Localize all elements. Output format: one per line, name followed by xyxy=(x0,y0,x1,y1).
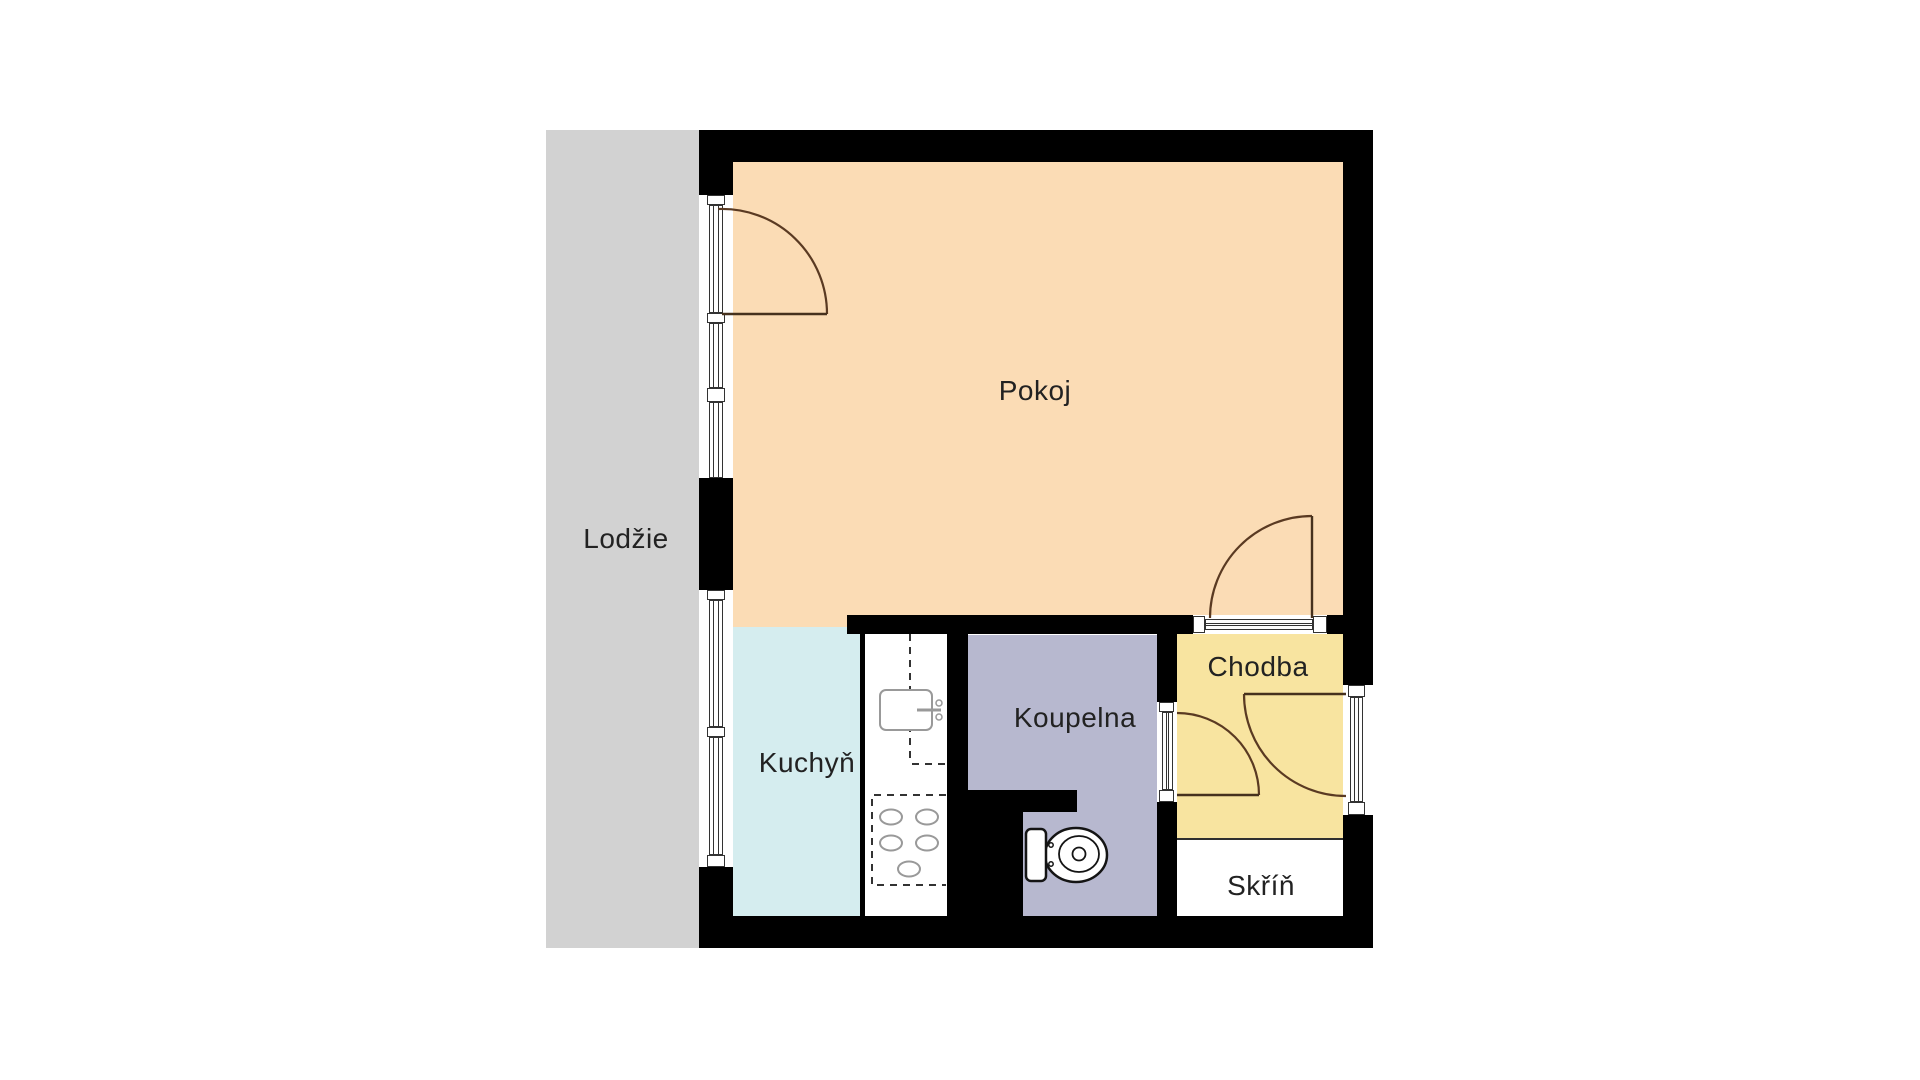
wall-koupelna-chodba-upper xyxy=(1157,634,1177,702)
room-label-lodzie: Lodžie xyxy=(583,523,669,555)
pokoj-door-frame xyxy=(1205,619,1313,630)
counter-edge-line xyxy=(860,633,865,916)
window-glazing-2 xyxy=(709,402,723,478)
room-label-chodba: Chodba xyxy=(1207,651,1308,683)
room-label-kuchyn: Kuchyň xyxy=(759,747,855,779)
wall-koupelna-chodba-lower xyxy=(1157,802,1177,916)
window-glazing-1 xyxy=(709,323,723,388)
room-label-pokoj: Pokoj xyxy=(999,375,1072,407)
wall-left-top-corner xyxy=(699,162,733,195)
door-jamb xyxy=(1313,616,1327,633)
wall-left-bottom-corner xyxy=(699,867,733,916)
window-sill xyxy=(707,855,725,867)
wall-bottom xyxy=(699,916,1373,948)
window-sill xyxy=(707,195,725,205)
window-sill xyxy=(707,388,725,402)
door-jamb xyxy=(1159,702,1174,712)
koupelna-door-frame xyxy=(1162,712,1173,790)
door-jamb xyxy=(1159,790,1174,802)
window-sill xyxy=(707,313,725,323)
door-jamb xyxy=(1348,685,1365,697)
wall-right-lower xyxy=(1343,815,1373,916)
wall-top xyxy=(699,130,1373,162)
entry-door-frame xyxy=(1350,697,1363,802)
kitchen-counter-area xyxy=(865,633,947,916)
wall-right-upper xyxy=(1343,162,1373,685)
room-label-skrin: Skříň xyxy=(1227,870,1295,902)
balcony-door-glazing xyxy=(709,205,723,313)
window-sill xyxy=(707,590,725,600)
door-jamb xyxy=(1193,616,1205,633)
wall-counter-koupelna xyxy=(947,615,968,916)
wall-pokoj-south-right xyxy=(1327,615,1343,634)
window-glazing-3 xyxy=(709,600,723,727)
wall-toilet-stub xyxy=(1023,790,1077,812)
wall-pokoj-south xyxy=(847,615,1193,634)
door-jamb xyxy=(1348,802,1365,815)
window-sill xyxy=(707,727,725,737)
wall-left-middle xyxy=(699,478,733,590)
room-label-koupelna: Koupelna xyxy=(1014,702,1136,734)
floor-plan: Pokoj Lodžie Kuchyň Koupelna Chodba Skří… xyxy=(0,0,1920,1080)
wall-toilet-block xyxy=(968,790,1023,916)
window-glazing-4 xyxy=(709,737,723,855)
